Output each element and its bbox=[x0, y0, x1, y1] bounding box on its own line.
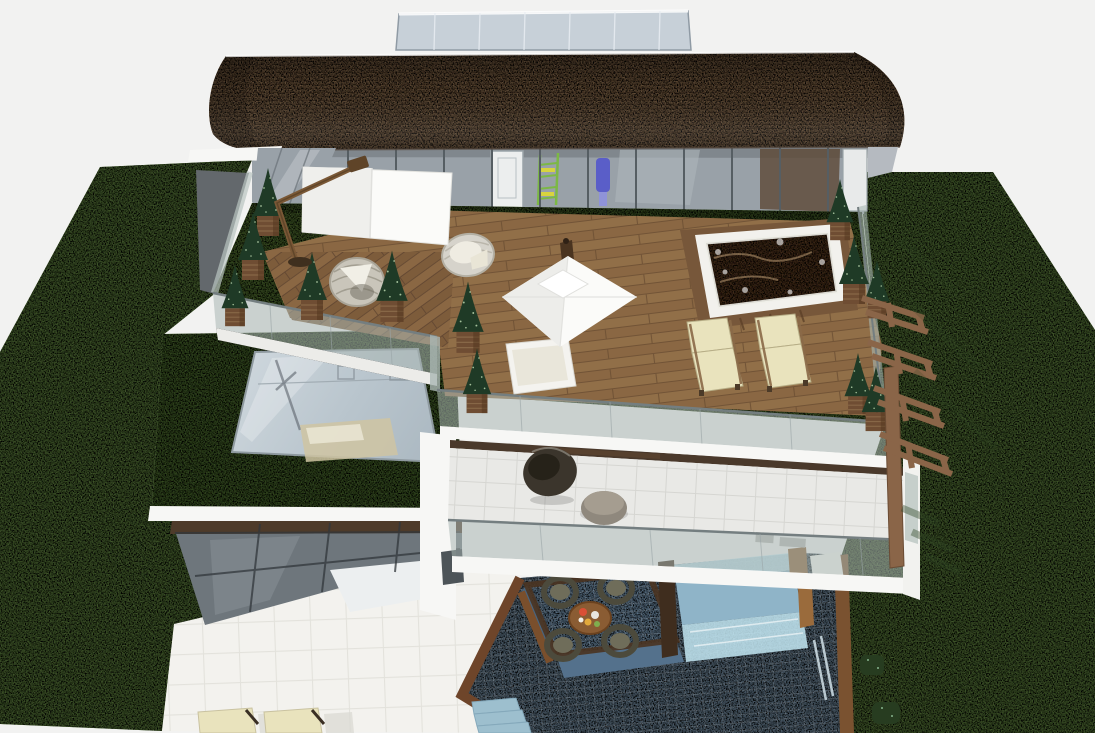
facade-door bbox=[843, 149, 867, 211]
tower-fascia bbox=[148, 506, 462, 521]
penthouse-glass bbox=[396, 11, 691, 50]
hedge bbox=[872, 702, 900, 724]
dining-table bbox=[569, 602, 611, 634]
curved-roof bbox=[209, 52, 904, 150]
railing-corner-return bbox=[430, 335, 440, 392]
hedge bbox=[860, 655, 884, 675]
parasol-foot bbox=[288, 257, 312, 267]
render-canvas bbox=[0, 0, 1095, 733]
lap-pool-post bbox=[798, 585, 814, 628]
daybed bbox=[506, 338, 576, 394]
render-viewport bbox=[0, 0, 1095, 733]
rooftop-glass-enclosure bbox=[396, 11, 691, 50]
facade-door bbox=[491, 151, 523, 208]
basket-chair bbox=[330, 258, 384, 306]
